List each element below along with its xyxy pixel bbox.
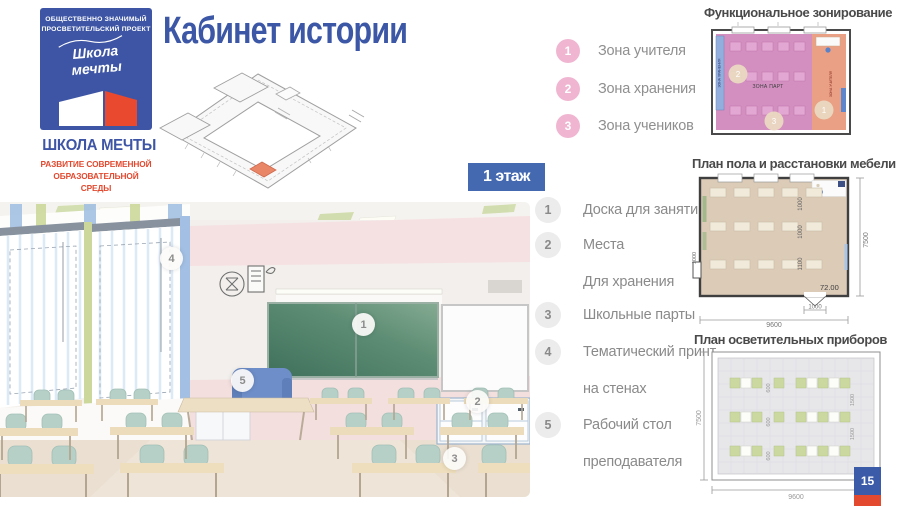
dim-door: 1000 [808, 305, 822, 311]
dim-left-door: 1000 [692, 252, 698, 264]
zoning-plan-title: Функциональное зонирование [704, 5, 864, 20]
feature-legend-item-2: 2 Места Для хранения [535, 232, 674, 295]
logo: ОБЩЕСТВЕННО ЗНАЧИМЫЙ ПРОСВЕТИТЕЛЬСКИЙ ПР… [40, 8, 152, 194]
area-label: 72.00 [820, 283, 839, 292]
page-number: 15 [854, 467, 881, 495]
feature-legend-label-3: Школьные парты [583, 302, 695, 328]
feature-legend-label-2b: Для хранения [583, 269, 674, 295]
zone-legend-label-1: Зона учителя [598, 43, 686, 59]
dim-aisle-1: 1000 [798, 197, 804, 211]
zone-legend-label-2: Зона хранения [598, 81, 696, 97]
window-left [0, 222, 84, 408]
photo-marker-5: 5 [231, 369, 254, 392]
zone-legend-item-2: 2 Зона хранения [556, 77, 696, 101]
feature-legend-item-1: 1 Доска для занятий [535, 197, 706, 223]
building-floorplan-3d [158, 68, 376, 198]
feature-legend-item-4: 4 Тематический принт на стенах [535, 339, 716, 402]
floor-badge: 1 этаж [468, 163, 545, 191]
page-title: Кабинет истории [163, 10, 407, 53]
logo-name: ШКОЛА МЕЧТЫ [42, 137, 150, 155]
photo-marker-1: 1 [352, 313, 375, 336]
zoning-marker-1: 1 [822, 106, 827, 115]
furniture-plan-title: План пола и расстановки мебели [692, 156, 882, 171]
storage-zone-label: ЗОНА ХРАНЕНИЯ [718, 58, 722, 87]
logo-subtitle-line1: РАЗВИТИЕ СОВРЕМЕННОЙ [40, 158, 152, 170]
zoning-marker-3: 3 [772, 117, 777, 126]
page-number-badge: 15 [854, 467, 881, 506]
feature-legend-badge-3: 3 [535, 302, 561, 328]
dim-aisle-2: 1000 [798, 225, 804, 239]
teacher-zone-label: ЗОНА УЧИТЕЛЯ [829, 70, 833, 97]
feature-legend-item-5: 5 Рабочий стол преподавателя [535, 412, 682, 475]
lighting-plan-title: План осветительных приборов [694, 332, 876, 347]
feature-legend-item-3: 3 Школьные парты [535, 302, 695, 328]
dim-height: 7500 [863, 232, 870, 248]
desk-zone-label: ЗОНА ПАРТ [753, 84, 784, 90]
feature-legend-badge-1: 1 [535, 197, 561, 223]
dim-600-row1: 600 [766, 383, 772, 392]
feature-legend-label-5a: Рабочий стол [583, 412, 682, 438]
logo-subtitle-line2: ОБРАЗОВАТЕЛЬНОЙ СРЕДЫ [40, 170, 152, 194]
zone-legend-label-3: Зона учеников [598, 118, 694, 134]
feature-legend-label-1: Доска для занятий [583, 197, 706, 223]
speaker-box [488, 280, 522, 293]
logo-script-name: Школа мечты [40, 40, 152, 82]
dim-1500-b: 1500 [850, 428, 856, 440]
window-wall [0, 204, 190, 464]
zoning-plan: ЗОНА ХРАНЕНИЯ ЗОНА УЧИТЕЛЯ ЗОНА ПАРТ 2 3… [708, 22, 856, 140]
dim-aisle-3: 1100 [798, 257, 804, 271]
logo-tagline-line1: ОБЩЕСТВЕННО ЗНАЧИМЫЙ [40, 15, 152, 25]
logo-tagline: ОБЩЕСТВЕННО ЗНАЧИМЫЙ ПРОСВЕТИТЕЛЬСКИЙ ПР… [40, 15, 152, 35]
dim-width: 9600 [766, 322, 782, 328]
logo-subtitle: РАЗВИТИЕ СОВРЕМЕННОЙ ОБРАЗОВАТЕЛЬНОЙ СРЕ… [40, 158, 152, 194]
dim-600-row2: 600 [766, 417, 772, 426]
zone-legend-badge-2: 2 [556, 77, 580, 101]
zone-legend-badge-3: 3 [556, 114, 580, 138]
photo-marker-4: 4 [160, 247, 183, 270]
photo-marker-2: 2 [466, 390, 489, 413]
photo-marker-3: 3 [443, 447, 466, 470]
slide: ОБЩЕСТВЕННО ЗНАЧИМЫЙ ПРОСВЕТИТЕЛЬСКИЙ ПР… [0, 0, 900, 506]
dim-width: 9600 [788, 494, 804, 500]
school-building-icon [53, 82, 141, 128]
zone-legend-item-1: 1 Зона учителя [556, 39, 686, 63]
zone-legend-item-3: 3 Зона учеников [556, 114, 694, 138]
chalkboard [268, 289, 442, 379]
feature-legend-label-5b: преподавателя [583, 449, 682, 475]
zoning-marker-2: 2 [736, 70, 741, 79]
whiteboard [442, 305, 528, 391]
feature-legend-badge-2: 2 [535, 232, 561, 258]
dim-1500-a: 1500 [850, 394, 856, 406]
dim-600-row3: 600 [766, 451, 772, 460]
furniture-plan: 1000 1000 1100 72.00 1000 7500 1000 9600 [692, 170, 882, 328]
feature-legend-label-2a: Места [583, 232, 674, 258]
feature-legend-badge-4: 4 [535, 339, 561, 365]
feature-legend-badge-5: 5 [535, 412, 561, 438]
dim-height: 7500 [696, 410, 703, 426]
logo-card: ОБЩЕСТВЕННО ЗНАЧИМЫЙ ПРОСВЕТИТЕЛЬСКИЙ ПР… [40, 8, 152, 130]
page-badge-accent [854, 495, 881, 506]
zone-legend-badge-1: 1 [556, 39, 580, 63]
